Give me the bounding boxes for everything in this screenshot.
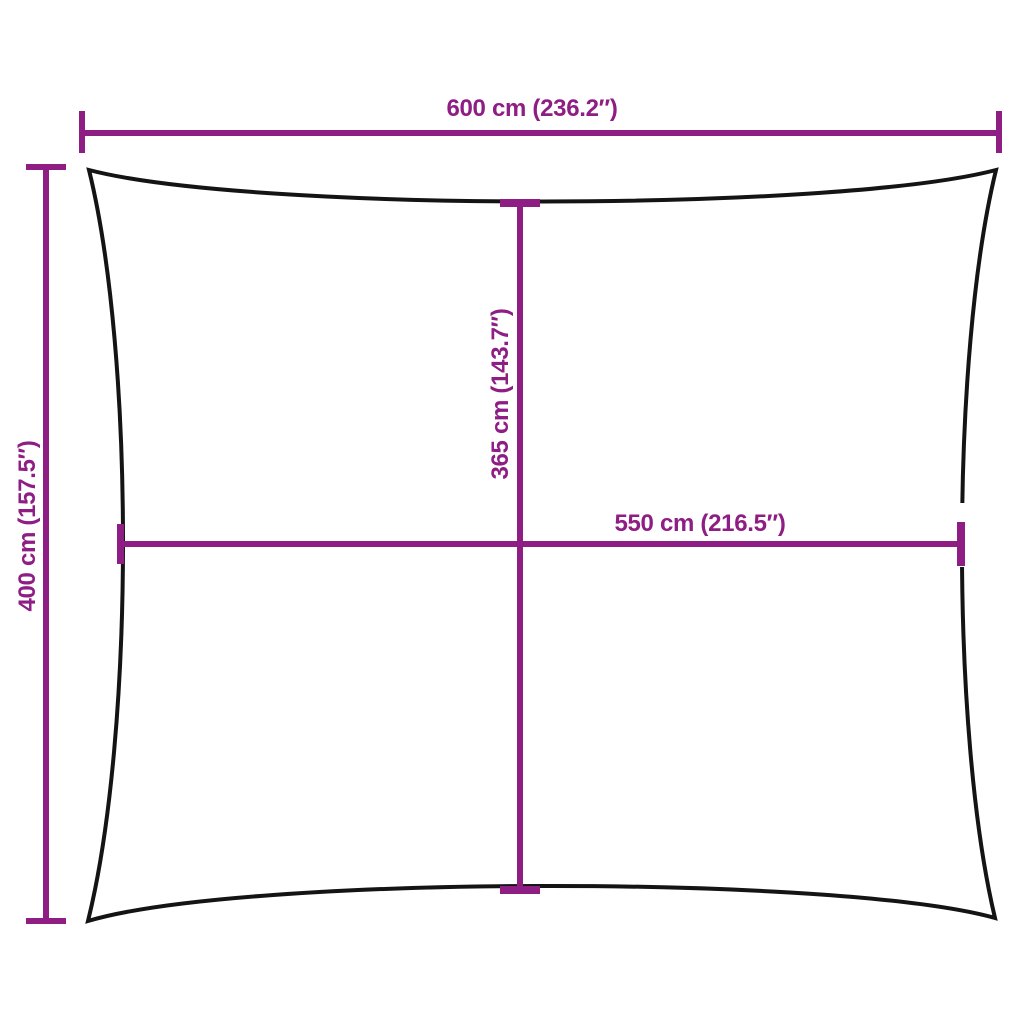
left-height-dimension-line: [43, 164, 49, 924]
middle-height-end-cap-bottom: [500, 886, 540, 894]
middle-width-end-cap-left: [117, 524, 124, 564]
sail-outline-drawing: [0, 0, 1024, 1024]
middle-height-dimension-line: [517, 201, 523, 893]
middle-height-label: 365 cm (143.7″): [489, 308, 513, 479]
top-width-label: 600 cm (236.2″): [446, 97, 617, 121]
top-width-dimension-line: [79, 130, 1002, 136]
left-height-end-cap-bottom: [26, 918, 66, 924]
left-height-label: 400 cm (157.5″): [16, 440, 40, 611]
top-width-end-cap-left: [79, 111, 85, 153]
middle-width-label: 550 cm (216.5″): [614, 512, 785, 536]
left-height-end-cap-top: [26, 164, 66, 170]
top-width-end-cap-right: [996, 111, 1002, 153]
middle-width-dimension-line: [120, 541, 961, 547]
middle-height-end-cap-top: [500, 199, 540, 207]
middle-width-end-cap-right: [957, 522, 965, 566]
shade-sail-dimension-diagram: 600 cm (236.2″) 400 cm (157.5″) 365 cm (…: [0, 0, 1024, 1024]
